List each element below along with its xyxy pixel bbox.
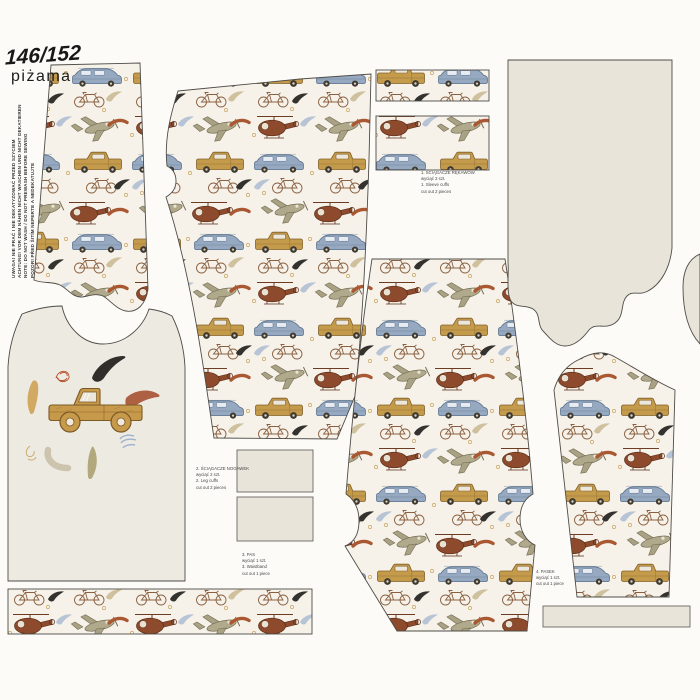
piece-sleeve-print: [554, 353, 675, 597]
piece-edge-fragment-plain: [683, 254, 700, 344]
caption-line: 3. Waistband: [242, 564, 270, 570]
panel-graphic: [0, 0, 700, 700]
piece-cuff-strip-1-print: [376, 70, 489, 101]
caption-line: cut out 2 pieces: [421, 189, 475, 195]
product-label: piżama: [11, 68, 72, 86]
caption-waistband: 3. PAS wyciąć 1 szt. 3. Waistband cut ou…: [242, 552, 270, 577]
piece-back-bodice-plain: [508, 60, 672, 346]
caption-line: cut out 1 piece: [536, 581, 564, 587]
care-line-4: POZOR! PŘED ŠITÍM NEPERTE A NEDEKATUJTE: [30, 94, 36, 278]
piece-waistband-strip-print: [8, 589, 312, 634]
piece-pants-leg-1-print: [166, 74, 371, 439]
piece-leg-cuff-rect-2-plain: [237, 497, 313, 541]
piece-cuff-strip-2-print: [376, 116, 489, 170]
caption-sleeve-cuffs: 1. ŚCIĄGACZE RĘKAWÓW wyciąć 2 szt. 1. Sl…: [421, 170, 475, 195]
piece-front-bodice-plain: [8, 306, 185, 581]
piece-pants-leg-2-print: [345, 259, 535, 631]
truck-hub-front: [117, 418, 125, 426]
piece-neckband-strip-plain: [543, 606, 690, 627]
caption-line: cut out 1 piece: [242, 571, 270, 577]
sewing-panel: 146/152 piżama UWAGA! NIE PRAĆ I NIE DEK…: [0, 0, 700, 700]
care-instructions-vertical: UWAGA! NIE PRAĆ I NIE DEKATYZOWAĆ PRZED …: [11, 94, 36, 278]
caption-leg-cuffs: 2. ŚCIĄGACZE NOGAWEK wyciąć 2 szt. 2. Le…: [196, 466, 249, 491]
truck-hub-rear: [66, 418, 74, 426]
caption-line: cut out 2 pieces: [196, 485, 249, 491]
piece-back-bodice-print: [34, 63, 148, 311]
caption-neckband: 4. PASEK wyciąć 1 szt. cut out 1 piece: [536, 569, 564, 588]
